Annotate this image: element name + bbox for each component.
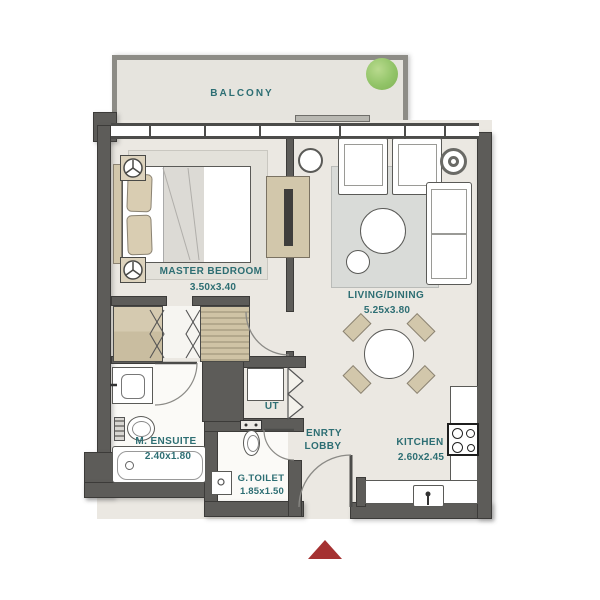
wall-closet-stub-right bbox=[192, 296, 250, 306]
gtoilet-bowl bbox=[243, 430, 260, 456]
living-dining-dims: 5.25x3.80 bbox=[364, 305, 410, 317]
kitchen-dims: 2.60x2.45 bbox=[398, 452, 444, 464]
armchair-1 bbox=[338, 138, 388, 195]
closet-corridor-floor bbox=[161, 306, 201, 358]
floor-lamp-inner bbox=[448, 156, 459, 167]
ensuite-toilet-tank bbox=[114, 417, 125, 441]
burner-3 bbox=[452, 442, 463, 453]
ensuite-toilet-inner bbox=[132, 421, 151, 437]
dining-table bbox=[364, 329, 414, 379]
balcony-label: BALCONY bbox=[210, 88, 273, 100]
bed-blanket bbox=[163, 167, 204, 262]
sliding-door bbox=[295, 115, 370, 122]
tv-screen bbox=[284, 189, 293, 246]
entry-lobby-label-line1: ENRTY bbox=[306, 428, 342, 440]
ensuite-vanity bbox=[112, 367, 153, 404]
wall-ensuite-ut-block bbox=[202, 360, 244, 422]
wall-closet-stub-left bbox=[111, 296, 167, 306]
wardrobe-right bbox=[200, 306, 250, 362]
bathtub-drain bbox=[125, 461, 134, 470]
coffee-table-large bbox=[360, 208, 406, 254]
utility-label: UT bbox=[265, 401, 279, 413]
master-bedroom-dims: 3.50x3.40 bbox=[190, 282, 236, 294]
burner-1 bbox=[452, 428, 463, 439]
wall-ensuite-bottom bbox=[84, 482, 210, 498]
washer bbox=[247, 368, 284, 401]
coffee-table-small bbox=[346, 250, 370, 274]
wardrobe-left bbox=[113, 306, 163, 362]
burner-2 bbox=[466, 429, 475, 438]
wall-gtoilet-right bbox=[288, 460, 302, 517]
armchair-1-cushion bbox=[344, 144, 383, 186]
armchair-2-cushion bbox=[398, 144, 437, 186]
gtoilet-dims: 1.85x1.50 bbox=[240, 486, 284, 498]
burner-4 bbox=[467, 444, 475, 452]
kitchen-sink bbox=[413, 485, 444, 507]
wall-left bbox=[97, 125, 111, 460]
entry-lobby-label-line2: LOBBY bbox=[305, 441, 342, 453]
wall-right bbox=[477, 132, 492, 519]
stove bbox=[447, 423, 479, 456]
gtoilet-bowl-inner bbox=[247, 435, 259, 452]
bed-pillow-2 bbox=[126, 215, 152, 256]
gtoilet-sink bbox=[211, 471, 232, 495]
plant-icon bbox=[366, 58, 398, 90]
living-dining-label: LIVING/DINING bbox=[348, 290, 424, 302]
sofa-cushions bbox=[431, 189, 467, 279]
gtoilet-tank bbox=[240, 420, 262, 430]
nightstand-light-top bbox=[120, 155, 146, 181]
pendant-light bbox=[298, 148, 323, 173]
entry-marker-icon bbox=[308, 540, 342, 559]
nightstand-light-bottom bbox=[120, 257, 146, 283]
window-band bbox=[111, 123, 479, 139]
gtoilet-label: G.TOILET bbox=[238, 473, 285, 485]
master-bedroom-label: MASTER BEDROOM bbox=[160, 266, 263, 278]
kitchen-label: KITCHEN bbox=[396, 437, 443, 449]
ensuite-basin bbox=[121, 374, 145, 399]
ensuite-label: M. ENSUITE bbox=[135, 436, 196, 448]
ensuite-dims: 2.40x1.80 bbox=[145, 451, 191, 463]
floor-plan: BALCONY bbox=[0, 0, 600, 600]
sofa bbox=[426, 182, 472, 285]
